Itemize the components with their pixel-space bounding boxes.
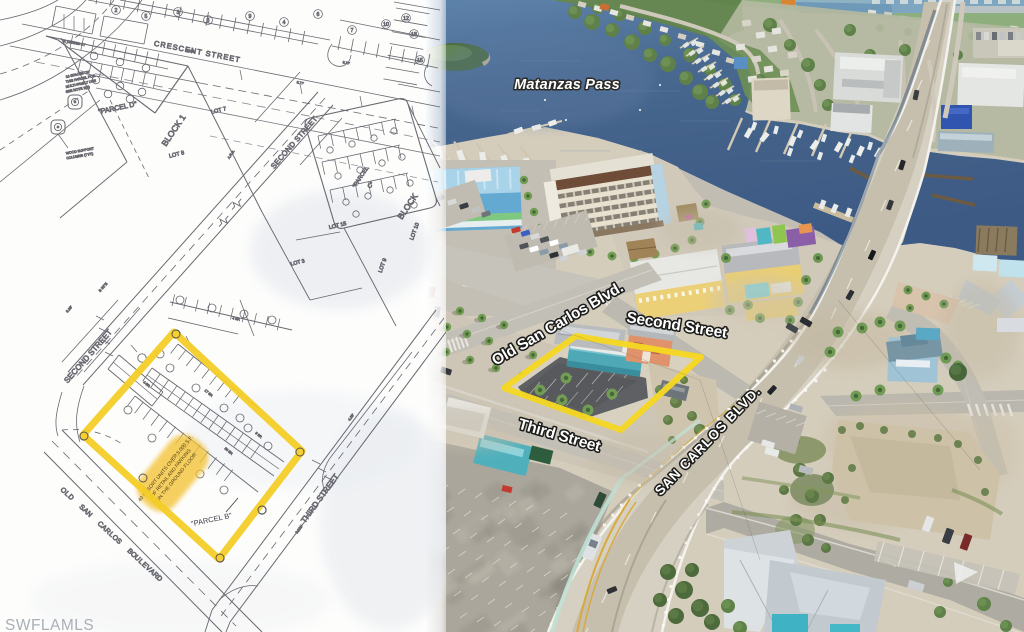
svg-text:10: 10 — [383, 22, 389, 28]
svg-text:3: 3 — [177, 10, 180, 16]
svg-text:2: 2 — [115, 8, 118, 14]
svg-text:9: 9 — [249, 14, 252, 20]
svg-text:12: 12 — [403, 16, 409, 22]
svg-text:6: 6 — [317, 12, 320, 18]
svg-text:8: 8 — [207, 18, 210, 24]
svg-text:4: 4 — [283, 20, 286, 26]
svg-text:Matanzas Pass: Matanzas Pass — [514, 77, 620, 93]
svg-text:7: 7 — [351, 28, 354, 34]
svg-text:18: 18 — [411, 32, 417, 38]
svg-text:SWFLAMLS: SWFLAMLS — [5, 617, 94, 632]
svg-text:5: 5 — [145, 14, 148, 20]
svg-text:15: 15 — [417, 58, 423, 64]
